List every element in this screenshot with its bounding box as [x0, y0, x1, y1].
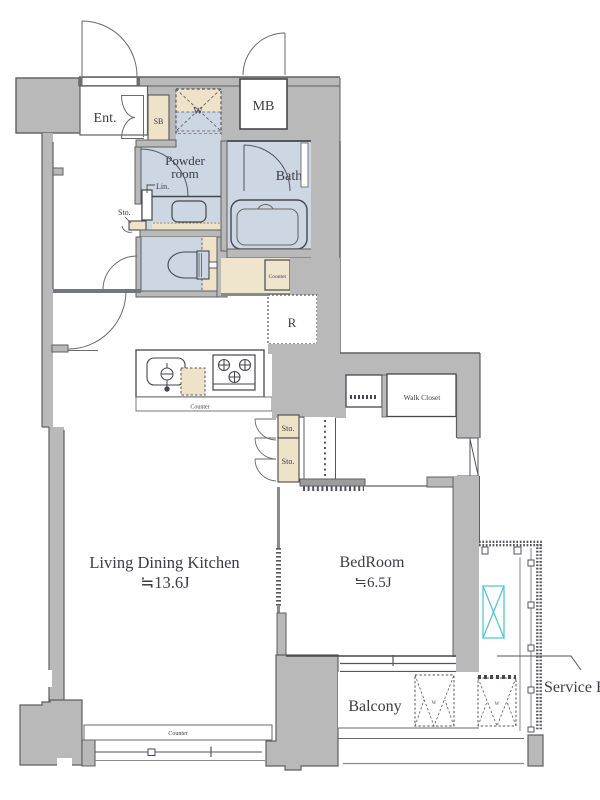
- svg-text:Lin.: Lin.: [156, 182, 169, 191]
- svg-text:Service B: Service B: [544, 679, 600, 696]
- svg-text:Sto.: Sto.: [282, 457, 295, 466]
- svg-text:Living Dining Kitchen: Living Dining Kitchen: [89, 553, 239, 572]
- svg-text:Balcony: Balcony: [348, 698, 401, 715]
- svg-text:R: R: [288, 315, 297, 330]
- svg-text:Counter: Counter: [190, 405, 209, 411]
- svg-text:W: W: [193, 106, 203, 117]
- svg-text:Ent.: Ent.: [94, 111, 117, 126]
- svg-text:MB: MB: [253, 99, 275, 114]
- svg-text:Counter: Counter: [269, 274, 287, 280]
- svg-text:Sto.: Sto.: [118, 208, 131, 217]
- svg-text:BedRoom: BedRoom: [340, 554, 405, 571]
- svg-text:≒13.6J: ≒13.6J: [140, 573, 190, 592]
- svg-text:≒6.5J: ≒6.5J: [354, 575, 391, 591]
- svg-text:Walk Closet: Walk Closet: [404, 393, 442, 402]
- svg-text:Sto.: Sto.: [282, 424, 295, 433]
- svg-text:Counter: Counter: [168, 731, 187, 737]
- svg-text:SB: SB: [154, 117, 164, 126]
